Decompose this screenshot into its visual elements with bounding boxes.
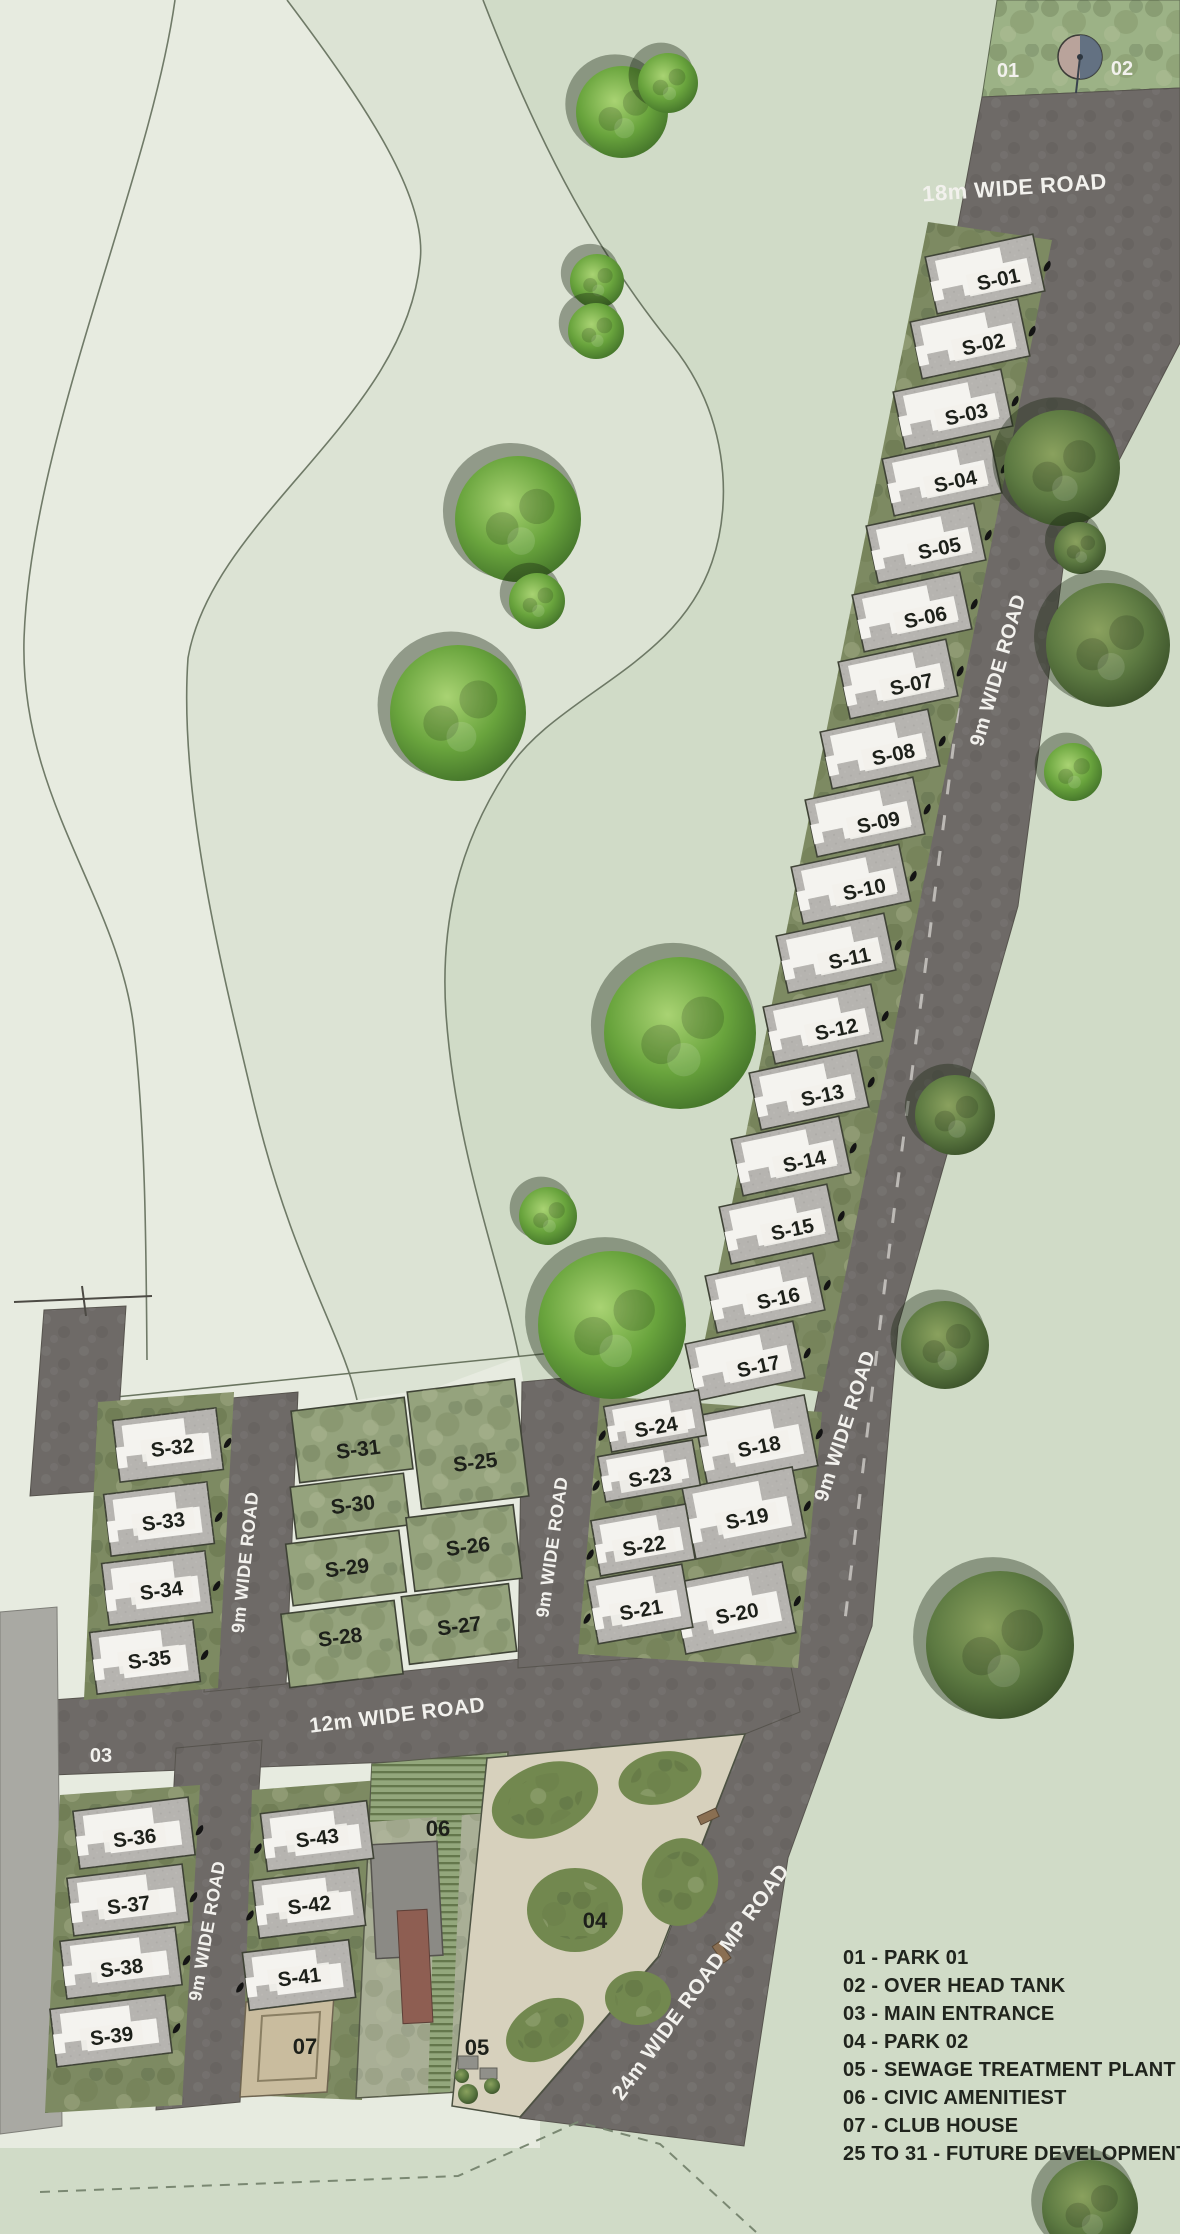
site-plan-page: S-31S-30S-29S-28S-25S-26S-27S-01S-02S-03… — [0, 0, 1180, 2234]
marker-label-07: 07 — [293, 2034, 317, 2059]
legend-item-entrance: 03 - MAIN ENTRANCE — [843, 2000, 1180, 2028]
park-02-lawn-texture — [615, 1979, 661, 2017]
legend-item-stp: 05 - SEWAGE TREATMENT PLANT — [843, 2056, 1180, 2084]
stp-bush — [484, 2078, 500, 2094]
plot-S-28[interactable]: S-28 — [281, 1600, 403, 1687]
legend-item-club: 07 - CLUB HOUSE — [843, 2112, 1180, 2140]
marker-label-02: 02 — [1111, 58, 1133, 80]
plot-S-29[interactable]: S-29 — [286, 1530, 407, 1605]
legend: 01 - PARK 01 02 - OVER HEAD TANK 03 - MA… — [843, 1944, 1180, 2168]
civic-building-roof — [397, 1909, 433, 2023]
plot-S-26[interactable]: S-26 — [406, 1505, 522, 1592]
marker-label-05: 05 — [465, 2035, 489, 2060]
plot-S-31[interactable]: S-31 — [291, 1397, 413, 1482]
marker-label-04: 04 — [583, 1908, 608, 1933]
legend-item-park02: 04 - PARK 02 — [843, 2028, 1180, 2056]
stp-bush — [455, 2069, 469, 2083]
legend-item-civic: 06 - CIVIC AMENITIEST — [843, 2084, 1180, 2112]
marker-label-06: 06 — [426, 1816, 450, 1841]
legend-item-tank: 02 - OVER HEAD TANK — [843, 1972, 1180, 2000]
legend-item-future: 25 TO 31 - FUTURE DEVELOPMENT — [843, 2140, 1180, 2168]
legend-item-park01: 01 - PARK 01 — [843, 1944, 1180, 1972]
marker-label-01: 01 — [997, 60, 1019, 82]
stp-bush — [458, 2084, 478, 2104]
stp-structure — [480, 2068, 497, 2079]
site-plan-map: S-31S-30S-29S-28S-25S-26S-27S-01S-02S-03… — [0, 0, 1180, 2234]
plot-S-27[interactable]: S-27 — [401, 1584, 516, 1665]
marker-label-03: 03 — [90, 1745, 112, 1767]
plot-S-25[interactable]: S-25 — [407, 1379, 529, 1509]
